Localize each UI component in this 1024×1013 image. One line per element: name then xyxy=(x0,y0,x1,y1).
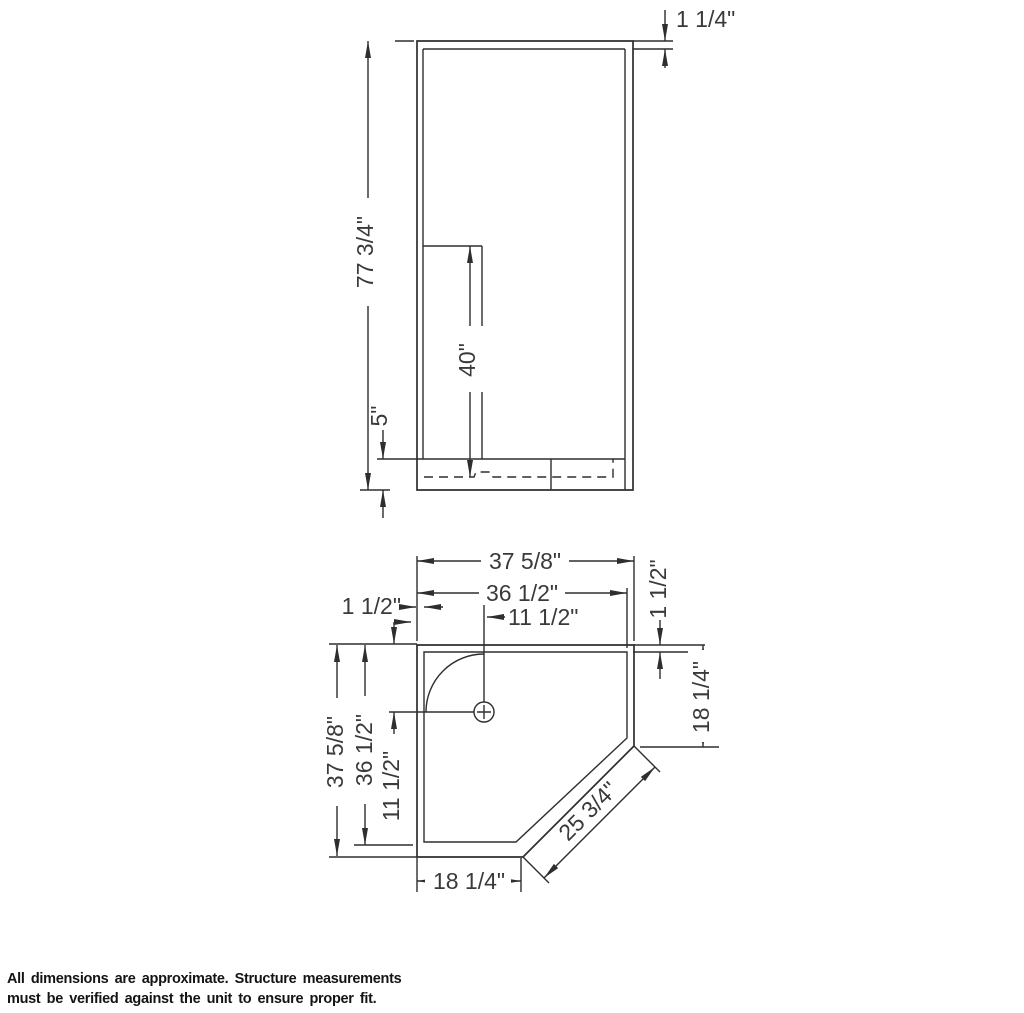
plan-drain-from-left-label: 11 1/2" xyxy=(508,604,578,630)
dim-top-frame: 1 1/4" xyxy=(633,6,735,68)
elevation-top-frame-label: 1 1/4" xyxy=(676,6,735,32)
plan-diagonal-label: 25 3/4" xyxy=(553,776,622,845)
shower-dimension-drawing: 77 3/4" 1 1/4" 40" 5" xyxy=(0,0,1024,1013)
plan-inner-width-label: 36 1/2" xyxy=(486,580,558,606)
extension-lines xyxy=(633,41,673,49)
plan-right-flange-label: 1 1/2" xyxy=(645,559,671,618)
dim-right-wall: 18 1/4" xyxy=(640,645,719,747)
elevation-back-panel-height-label: 40" xyxy=(454,343,480,377)
dim-base-height: 5" xyxy=(366,406,392,518)
footer-note: All dimensions are approximate. Structur… xyxy=(7,969,427,1009)
dim-left-flange: 1 1/2" xyxy=(342,593,443,622)
drain-crosshair xyxy=(477,705,491,719)
plan-outer-depth-label: 37 5/8" xyxy=(322,716,348,788)
plan-outer-outline xyxy=(417,645,634,857)
plan-right-wall-label: 18 1/4" xyxy=(688,661,714,733)
dim-drain-from-back: 11 1/2" xyxy=(378,622,404,821)
elevation-base-height-label: 5" xyxy=(366,406,392,427)
plan-outer-width-label: 37 5/8" xyxy=(489,548,561,574)
plan-left-flange-label: 1 1/2" xyxy=(342,593,401,619)
plan-view: 37 5/8" 36 1/2" 11 1/2" 1 1/2" 37 5/8" xyxy=(322,548,719,894)
footer-note-line2: must be verified against the unit to ens… xyxy=(7,989,427,1009)
footer-note-line1: All dimensions are approximate. Structur… xyxy=(7,969,427,989)
plan-front-wall-label: 18 1/4" xyxy=(433,868,505,894)
dim-front-wall: 18 1/4" xyxy=(417,858,521,894)
dim-drain-from-left: 11 1/2" xyxy=(487,604,578,630)
elevation-outer-outline xyxy=(417,41,633,490)
dim-back-panel-height: 40" xyxy=(453,246,483,477)
elevation-overall-height-label: 77 3/4" xyxy=(352,216,378,288)
dim-diagonal: 25 3/4" xyxy=(523,746,660,883)
elevation-view: 77 3/4" 1 1/4" 40" 5" xyxy=(351,6,735,518)
plan-drain-from-back-label: 11 1/2" xyxy=(378,751,404,821)
technical-drawing-svg: 77 3/4" 1 1/4" 40" 5" xyxy=(0,0,1024,1013)
drain xyxy=(389,600,494,722)
plan-inner-depth-label: 36 1/2" xyxy=(351,714,377,786)
elevation-hidden-base-line xyxy=(424,459,613,477)
plan-corner-arc xyxy=(426,654,484,712)
